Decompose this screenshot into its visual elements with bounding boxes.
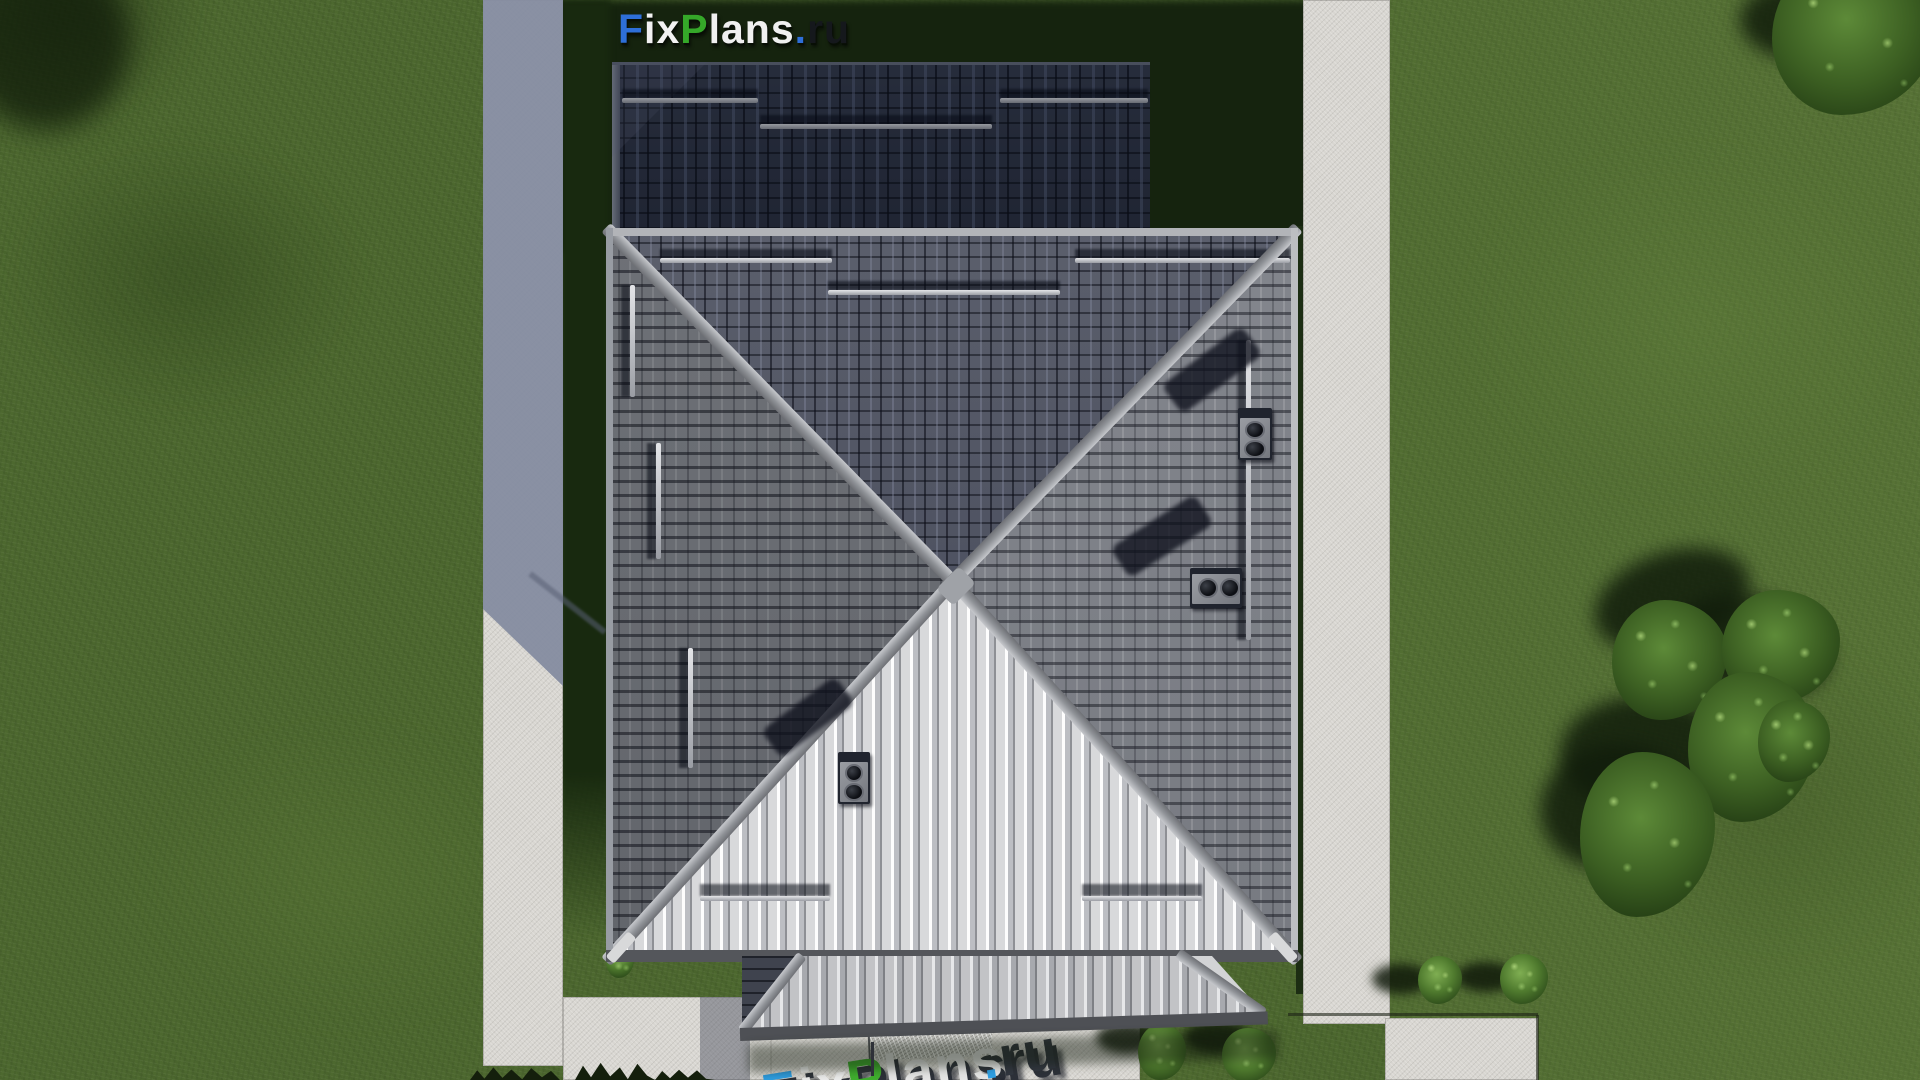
watermark-letter: P (680, 6, 708, 52)
snow-rail (828, 290, 1060, 295)
snow-rail-shadow (828, 281, 1060, 290)
snow-rail (660, 258, 832, 263)
watermark-letter: . (795, 6, 807, 52)
snow-rail-shadow (700, 884, 830, 896)
chimney (838, 752, 870, 804)
snow-rail (656, 443, 661, 559)
snow-rail-shadow (621, 285, 630, 397)
lawn-edging-horizontal (1288, 1013, 1538, 1016)
bottom-right-patio (1385, 1018, 1538, 1080)
garage-shadow-tint (612, 62, 1150, 232)
right-walkway (1303, 0, 1390, 1024)
chimney-flue (845, 764, 863, 782)
eave-left (606, 228, 613, 962)
snow-rail-shadow (1075, 249, 1290, 258)
snow-rail-shadow (679, 648, 688, 768)
chimney (1238, 408, 1272, 460)
main-hip-roof (606, 228, 1298, 962)
lawn-right-highlight (1390, 0, 1920, 1080)
left-walkway-shadow (483, 0, 563, 700)
aerial-render-scene: F ix P lans . ru (0, 0, 1920, 1080)
watermark-letter: F (618, 6, 644, 52)
snow-rail-shadow (647, 443, 656, 559)
garage-roof (612, 62, 1150, 232)
chimney-flue (844, 783, 864, 801)
chimney-flue (1245, 421, 1265, 439)
chimney-flue (1220, 578, 1240, 598)
snow-rail (630, 285, 635, 397)
chimney-flue (1198, 578, 1218, 598)
chimney-flue (1244, 440, 1266, 458)
watermark-logo: FixPlans.ru (618, 6, 850, 52)
house-shadow-left-strip (560, 0, 610, 940)
lawn-edging-vertical (1536, 1015, 1539, 1080)
snow-rail-shadow (1082, 884, 1202, 896)
watermark-letter: ru (807, 6, 850, 52)
eave-top (606, 228, 1298, 236)
watermark-letter: lans (709, 6, 795, 52)
snow-rail-shadow (660, 249, 832, 258)
chimney (1190, 568, 1242, 608)
snow-rail (1246, 340, 1251, 640)
downspout (871, 1042, 874, 1076)
eave-right (1291, 228, 1298, 962)
snow-rail (688, 648, 693, 768)
snow-rail (700, 896, 830, 901)
snow-rail (1082, 896, 1202, 901)
watermark-letter: ix (644, 6, 680, 52)
